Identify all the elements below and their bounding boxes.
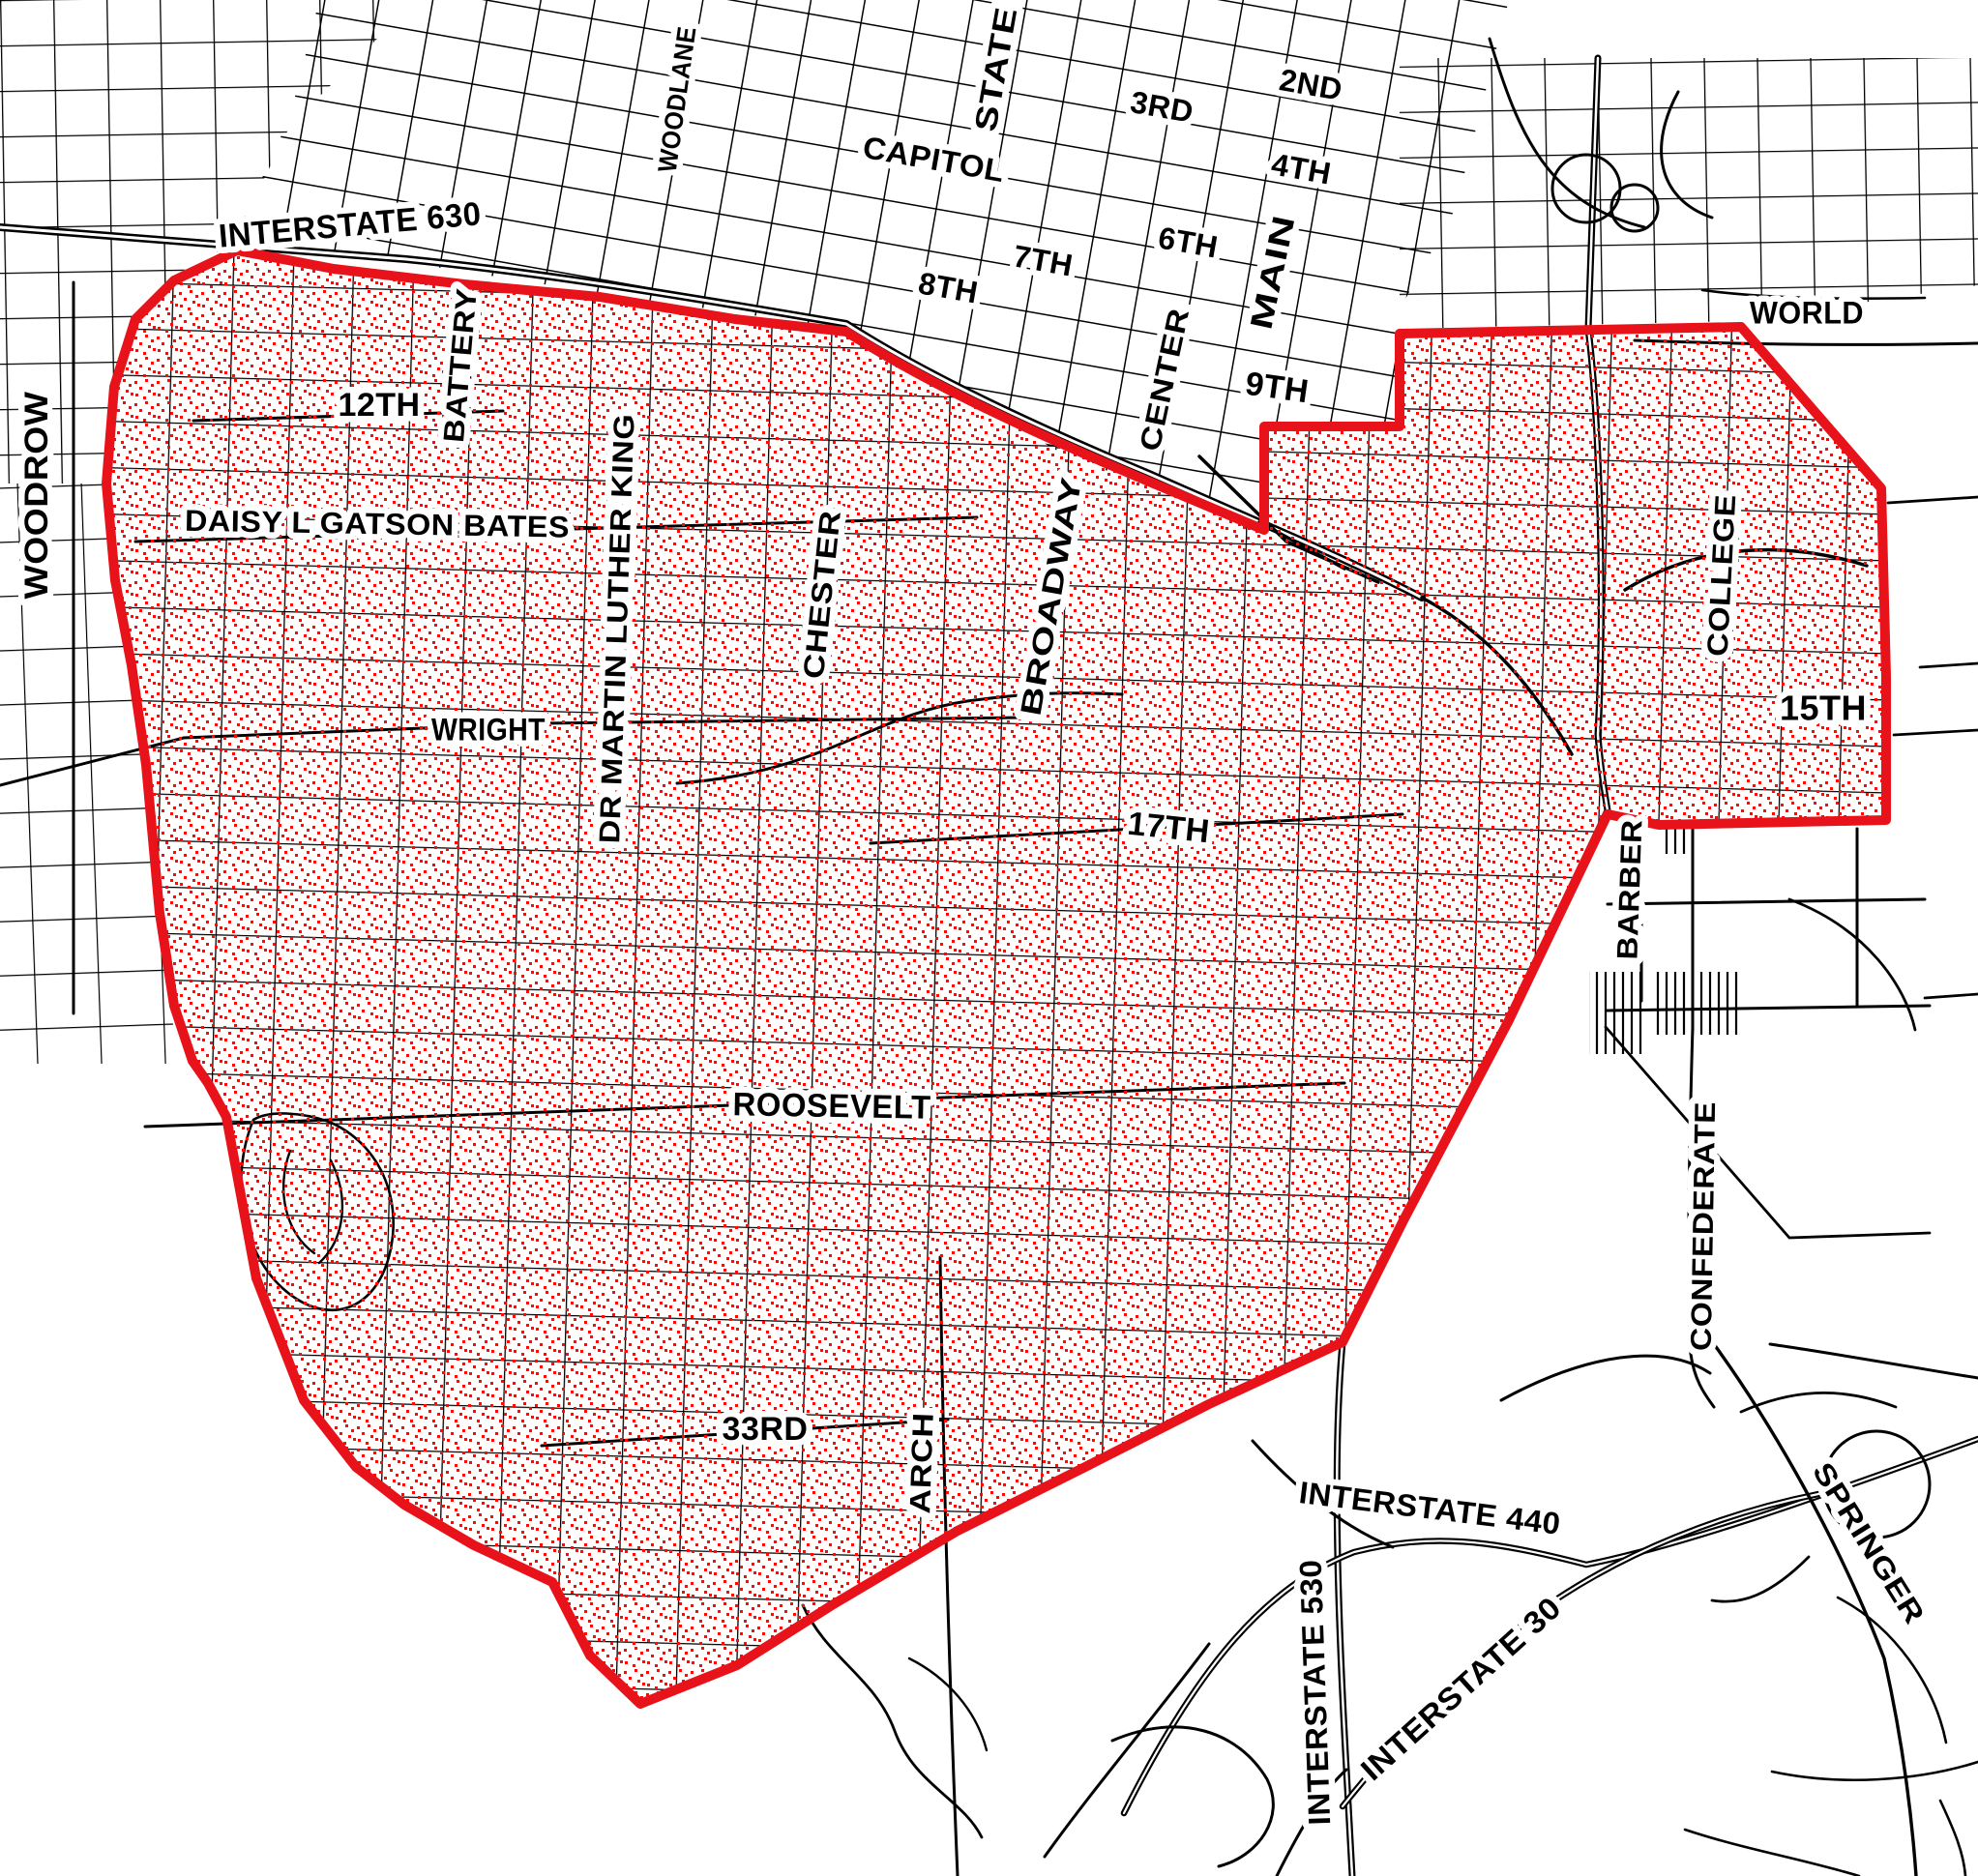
street-label-wright: WRIGHT — [431, 712, 546, 747]
street-label-arch: ARCH — [904, 1412, 940, 1514]
street-label-woodrow: WOODROW — [18, 391, 55, 599]
street-label-barber: BARBER — [1611, 819, 1648, 960]
street-label-confederate: CONFEDERATE — [1686, 1101, 1722, 1352]
street-label-roosevelt: ROOSEVELT — [732, 1086, 931, 1127]
street-map: WOODROW INTERSTATE 630 WOODLANE STATE CA… — [0, 0, 1978, 1876]
street-label-world: WORLD — [1750, 295, 1864, 330]
street-label-12th: 12TH — [338, 387, 420, 424]
street-label-daisy-l-gatson-bates: DAISY L GATSON BATES — [185, 504, 571, 544]
street-label-33rd: 33RD — [723, 1411, 809, 1448]
street-label-15th: 15TH — [1780, 689, 1867, 728]
map-canvas: WOODROW INTERSTATE 630 WOODLANE STATE CA… — [0, 0, 1978, 1876]
